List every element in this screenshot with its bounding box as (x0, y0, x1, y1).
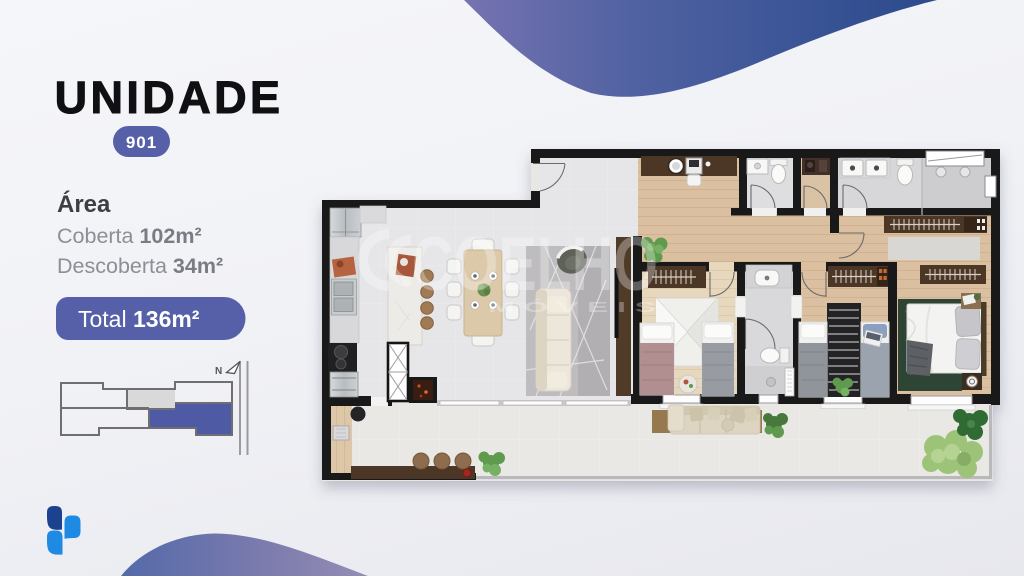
svg-text:Coberta 102m²: Coberta 102m² (57, 224, 202, 248)
svg-text:Total 136m²: Total 136m² (78, 306, 200, 332)
svg-text:901: 901 (126, 133, 157, 152)
svg-text:UNIDADE: UNIDADE (55, 72, 284, 123)
svg-text:Área: Área (57, 190, 111, 218)
svg-text:M Ó V E I S: M Ó V E I S (488, 298, 656, 316)
svg-text:N: N (215, 366, 222, 377)
svg-text:COELHO: COELHO (412, 222, 658, 307)
svg-text:Descoberta 34m²: Descoberta 34m² (57, 254, 223, 278)
